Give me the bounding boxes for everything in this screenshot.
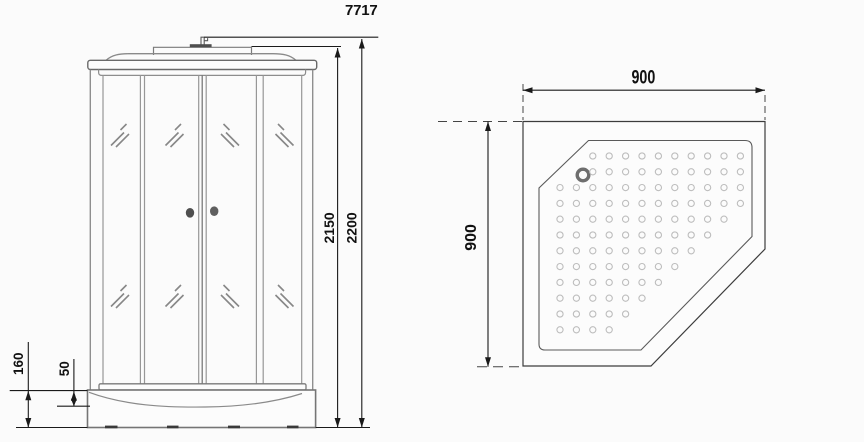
- svg-text:50: 50: [57, 361, 72, 376]
- svg-text:900: 900: [463, 224, 480, 251]
- svg-text:7717: 7717: [345, 2, 378, 19]
- svg-text:2200: 2200: [343, 212, 359, 243]
- svg-text:2150: 2150: [321, 212, 337, 243]
- svg-text:900: 900: [632, 66, 656, 88]
- svg-text:160: 160: [11, 352, 26, 375]
